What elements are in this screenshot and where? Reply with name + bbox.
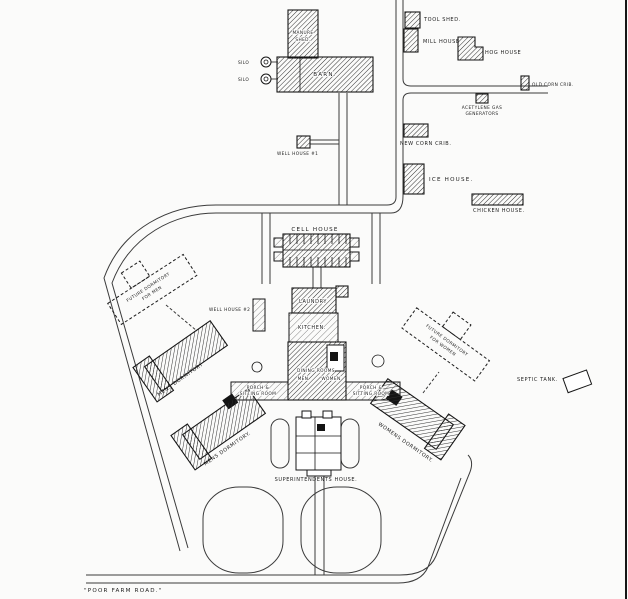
well-house-2-building <box>253 299 265 331</box>
road-bottom <box>86 455 472 583</box>
porch-left-label-2: SITTING ROOM <box>240 391 277 397</box>
cell-house-stub-1 <box>274 238 283 247</box>
porch-left-label-1: PORCH & <box>247 385 270 391</box>
superintendents-house-label: SUPERINTENDENTS HOUSE. <box>275 477 358 483</box>
well-house-1-label: WELL HOUSE #1 <box>277 151 318 157</box>
walk-house-left <box>271 419 289 468</box>
dining-women-label: WOMEN <box>321 376 340 382</box>
porch-right-label-2: SITTING ROOM <box>353 391 390 397</box>
ice-house-building <box>404 164 424 194</box>
mill-house-building <box>404 29 418 52</box>
manure-shed-label: MANURE <box>292 30 313 36</box>
silo-label-1: SILO <box>238 60 249 66</box>
old-corn-crib-building <box>521 76 529 90</box>
laundry-annex <box>336 286 348 297</box>
old-corn-crib-label: OLD CORN CRIB. <box>532 82 574 88</box>
chicken-house-building <box>472 194 523 205</box>
dashed-walk-future-men <box>166 305 197 331</box>
ice-house-label: ICE HOUSE. <box>429 177 473 183</box>
barn-label: BARN. <box>313 72 337 78</box>
poor-farm-road-label: "POOR FARM ROAD." <box>84 588 163 594</box>
dining-rooms-label: DINING ROOMS <box>297 368 335 374</box>
walk-cellhouse-left <box>262 213 270 284</box>
manure-shed-label-2: SHED. <box>295 37 310 43</box>
silo-2-shape <box>261 74 271 84</box>
tree-circle-right <box>372 355 384 367</box>
laundry-label: LAUNDRY <box>299 299 327 305</box>
acetylene-label-1: ACETYLENE GAS <box>462 105 502 111</box>
dining-stair-block <box>330 352 338 361</box>
wellhouse1-pipe <box>310 140 339 144</box>
hog-house-label: HOG HOUSE <box>485 50 521 56</box>
future-dormitory-women-building <box>402 293 500 381</box>
septic-tank-label: SEPTIC TANK. <box>517 377 558 383</box>
driveway-loop-left <box>203 487 283 573</box>
new-corn-crib-building <box>404 124 428 137</box>
walk-center-south <box>315 472 324 575</box>
tool-shed-label: TOOL SHED. <box>423 17 461 23</box>
cell-house-stub-2 <box>274 252 283 261</box>
well-house-2-label: WELL HOUSE #2 <box>209 307 250 313</box>
mens-dormitory-upper-building <box>133 316 231 402</box>
site-plan-drawing: MANURE SHED. BARN. SILO SILO TOOL SHED. … <box>0 0 628 599</box>
cell-house-building <box>283 234 350 267</box>
road-barn-lane <box>339 93 347 205</box>
tool-shed-building <box>405 12 420 28</box>
dining-men-label: MEN <box>298 376 309 382</box>
cell-house-label: CELL HOUSE <box>291 227 338 233</box>
tree-circle-left <box>252 362 262 372</box>
acetylene-label-2: GENERATORS <box>465 111 498 117</box>
site-plan: MANURE SHED. BARN. SILO SILO TOOL SHED. … <box>0 0 628 599</box>
walk-cellhouse-right <box>372 213 380 284</box>
main-complex <box>98 234 592 476</box>
mill-house-label: MILL HOUSE <box>423 39 460 45</box>
new-corn-crib-label: NEW CORN CRIB. <box>400 141 452 147</box>
driveway-loop-right <box>301 487 381 573</box>
dashed-walk-future-women <box>423 372 439 393</box>
well-house-1-building <box>297 136 310 148</box>
septic-tank-shape <box>563 370 592 393</box>
walk-house-right <box>341 419 359 468</box>
chicken-house-label: CHICKEN HOUSE. <box>473 208 525 214</box>
superintendents-house-building <box>296 411 341 476</box>
porch-right-label-1: PORCH & <box>360 385 383 391</box>
kitchen-label: KITCHEN. <box>298 325 326 331</box>
corridor-cell-to-laundry <box>313 267 321 288</box>
silo-1-shape <box>261 57 271 67</box>
cell-house-stub-4 <box>350 252 359 261</box>
hog-house-building <box>458 37 483 60</box>
cell-house-stub-3 <box>350 238 359 247</box>
acetylene-generators-building <box>476 94 488 103</box>
silo-label-2: SILO <box>238 77 249 83</box>
